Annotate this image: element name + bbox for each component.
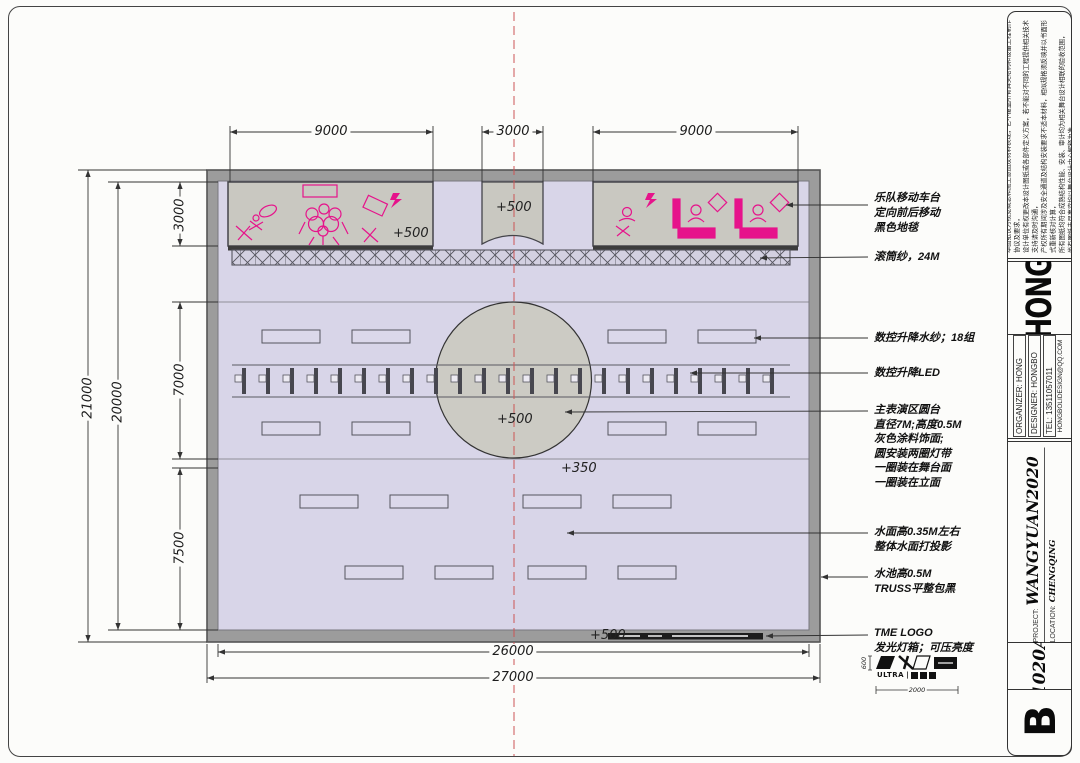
designer-row: DESIGNER: HONGBO bbox=[1028, 335, 1041, 437]
water-gauze-unit bbox=[262, 422, 320, 435]
dim-left-inner: 20000 bbox=[111, 379, 126, 424]
logo-square-1 bbox=[911, 672, 918, 679]
project-title: WANGYUAN2020 bbox=[1022, 456, 1041, 605]
title-block: 本图纸仅为视觉概念和施工意图及材料表现，它不覆盖所有舞美结构和设备工程制作协议及… bbox=[1007, 11, 1072, 756]
level-water: +350 bbox=[561, 461, 597, 476]
level-circle: +500 bbox=[497, 412, 533, 427]
dim-left-outer: 21000 bbox=[81, 375, 96, 420]
dim-bottom-outer: 27000 bbox=[489, 670, 536, 685]
water-gauze-unit bbox=[528, 566, 586, 579]
water-gauze-unit bbox=[698, 422, 756, 435]
level-center-platform: +500 bbox=[496, 200, 532, 215]
level-bottom-edge: +500 bbox=[590, 628, 626, 643]
disclaimer-section: 本图纸仅为视觉概念和施工意图及材料表现，它不覆盖所有舞美结构和设备工程制作协议及… bbox=[1008, 12, 1071, 258]
annotation-circle-stage: 主表演区圆台 直径7M;高度0.5M 灰色涂料饰面; 圆安装两圈灯带 一圈装在舞… bbox=[874, 403, 961, 490]
annotation-roller-gauze: 滚筒纱，24M bbox=[874, 250, 939, 265]
location-value: CHENGQING bbox=[1047, 539, 1057, 602]
organizer-row: ORGANIZER: HONG bbox=[1013, 335, 1026, 437]
water-gauze-unit bbox=[608, 422, 666, 435]
logo-dim-width: 2000 bbox=[908, 686, 927, 694]
revision-section: B bbox=[1008, 689, 1071, 753]
annotation-band-cart: 乐队移动车台 定向前后移动 黑色地毯 bbox=[874, 191, 940, 236]
logo-dim-height: 600 bbox=[860, 656, 868, 670]
annotation-water-gauze: 数控升降水纱；18组 bbox=[874, 331, 974, 346]
dim-top-left: 9000 bbox=[311, 124, 350, 139]
dim-top-right: 9000 bbox=[676, 124, 715, 139]
level-left-platform: +500 bbox=[393, 226, 429, 241]
dim-chain-3000: 3000 bbox=[173, 196, 188, 233]
water-gauze-unit bbox=[352, 422, 410, 435]
tel-row: TEL: 13511057011 bbox=[1043, 335, 1056, 437]
contact-info-section: ORGANIZER: HONG DESIGNER: HONGBO TEL: 13… bbox=[1008, 334, 1071, 438]
revision-letter: B bbox=[1010, 689, 1070, 753]
project-label: PROJECT: bbox=[1032, 608, 1039, 642]
water-gauze-unit bbox=[523, 495, 581, 508]
water-gauze-unit bbox=[435, 566, 493, 579]
water-gauze-unit bbox=[613, 495, 671, 508]
dim-chain-7500: 7500 bbox=[173, 529, 188, 566]
dim-top-center: 3000 bbox=[493, 124, 532, 139]
sheet-code: 1020A bbox=[1010, 642, 1070, 689]
water-gauze-unit bbox=[608, 330, 666, 343]
band-platform-right bbox=[593, 182, 798, 251]
location-label: LOCATION: bbox=[1049, 605, 1056, 642]
dim-bottom-inner: 26000 bbox=[489, 644, 536, 659]
drawing-sheet: 9000 3000 9000 21000 20000 3000 7000 750… bbox=[0, 0, 1080, 763]
water-gauze-unit bbox=[698, 330, 756, 343]
tme-logo-strip bbox=[608, 633, 763, 640]
dim-chain-7000: 7000 bbox=[173, 361, 188, 398]
sheet-code-section: 1020A bbox=[1008, 642, 1071, 689]
annotation-water-surface: 水面高0.35M左右 整体水面打投影 bbox=[874, 525, 960, 555]
water-gauze-unit bbox=[262, 330, 320, 343]
water-gauze-unit bbox=[618, 566, 676, 579]
annotation-pool: 水池高0.5M TRUSS平整包黑 bbox=[874, 567, 955, 597]
annotation-led: 数控升降LED bbox=[874, 366, 940, 381]
ultra-logo-label: ULTRA | bbox=[877, 671, 936, 679]
logo-square-2 bbox=[920, 672, 927, 679]
annotation-tme-logo: TME LOGO 发光灯箱；可压亮度 bbox=[874, 626, 973, 656]
project-section: PROJECT: WANGYUAN2020 LOCATION: CHENGQIN… bbox=[1008, 441, 1071, 642]
email-row: HONGBOLIDESIGN@QQ.COM bbox=[1057, 340, 1064, 433]
logo-square-3 bbox=[929, 672, 936, 679]
hong-logo-section: HONG bbox=[1008, 261, 1071, 334]
water-gauze-unit bbox=[390, 495, 448, 508]
water-gauze-unit bbox=[300, 495, 358, 508]
water-gauze-unit bbox=[345, 566, 403, 579]
hong-logo: HONG bbox=[1008, 261, 1071, 334]
truss-band bbox=[232, 250, 790, 265]
water-gauze-unit bbox=[352, 330, 410, 343]
